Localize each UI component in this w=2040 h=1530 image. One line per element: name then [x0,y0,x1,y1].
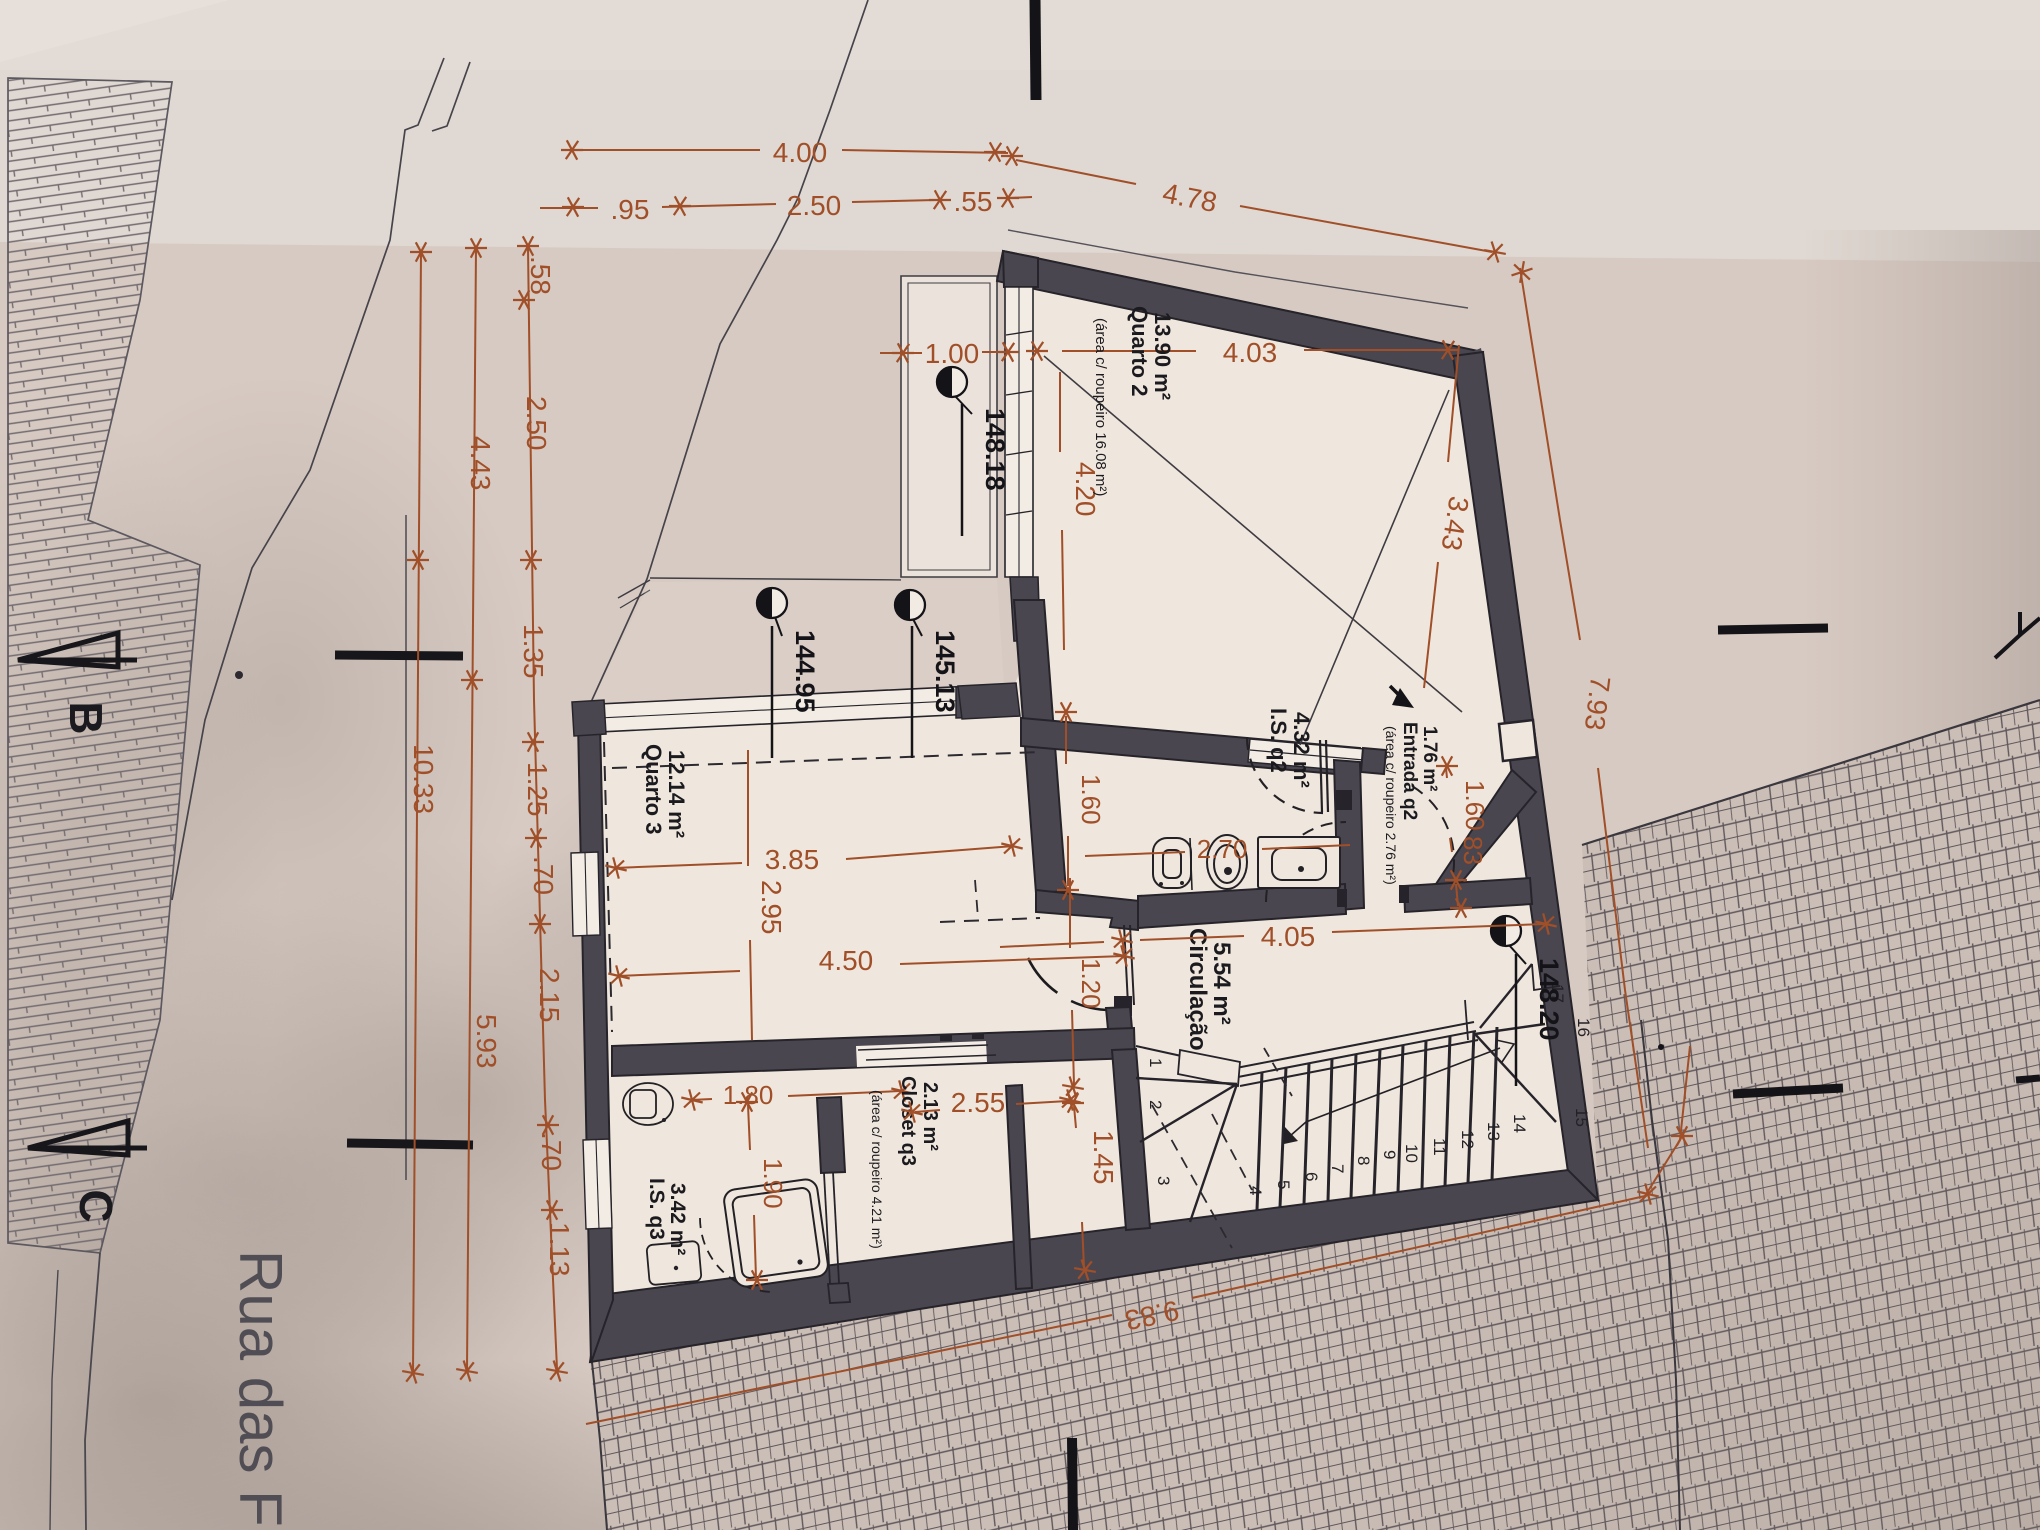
svg-text:Entrada q2: Entrada q2 [1399,722,1420,820]
svg-text:6: 6 [1302,1172,1321,1181]
svg-text:2.50: 2.50 [787,190,842,221]
svg-text:4.32 m²: 4.32 m² [1289,712,1314,788]
svg-text:I.S. q2: I.S. q2 [1266,708,1291,773]
svg-text:1.45: 1.45 [1088,1130,1119,1185]
svg-text:Quarto 3: Quarto 3 [641,744,666,834]
svg-text:.70: .70 [528,856,559,895]
svg-text:1.13: 1.13 [544,1222,575,1277]
svg-text:83: 83 [1458,836,1488,865]
svg-text:8: 8 [1354,1156,1373,1165]
svg-text:4.03: 4.03 [1223,337,1278,368]
svg-text:3.85: 3.85 [765,844,820,875]
svg-text:145.13: 145.13 [930,630,960,713]
svg-text:B: B [60,701,112,734]
svg-text:1.60: 1.60 [1460,780,1490,831]
svg-text:10.33: 10.33 [408,744,439,814]
svg-text:Closet q3: Closet q3 [897,1076,919,1166]
svg-text:2.95: 2.95 [756,880,787,935]
svg-text:Rua das Flo: Rua das Flo [227,1250,294,1530]
svg-text:10: 10 [1402,1144,1421,1163]
svg-text:.95: .95 [611,194,650,225]
svg-text:2: 2 [1146,1100,1165,1109]
svg-text:3: 3 [1154,1176,1173,1185]
svg-text:1.20: 1.20 [1076,958,1106,1009]
svg-text:4: 4 [1246,1186,1265,1195]
svg-text:I.S. q3: I.S. q3 [645,1178,668,1240]
svg-text:C: C [70,1189,122,1222]
svg-text:2.55: 2.55 [951,1087,1006,1118]
svg-text:.55: .55 [954,186,993,217]
svg-text:1.00: 1.00 [925,338,980,369]
svg-text:7.93: 7.93 [1579,674,1616,732]
svg-text:2.70: 2.70 [1197,834,1248,864]
svg-text:.70: .70 [536,1132,567,1171]
svg-text:5: 5 [1274,1180,1293,1189]
svg-text:1: 1 [1146,1058,1165,1067]
svg-text:2.15: 2.15 [534,968,565,1023]
svg-text:(área c/ roupeiro 16.08 m²): (área c/ roupeiro 16.08 m²) [1092,318,1109,496]
svg-text:15: 15 [1572,1108,1591,1127]
svg-text:11: 11 [1430,1138,1449,1156]
svg-text:Quarto 2: Quarto 2 [1127,306,1152,396]
svg-text:13.90 m²: 13.90 m² [1150,312,1175,400]
svg-text:Circulação: Circulação [1184,928,1211,1051]
svg-text:.58: .58 [525,256,556,295]
svg-text:1.76 m²: 1.76 m² [1419,726,1440,791]
svg-text:4.43: 4.43 [465,436,496,491]
svg-text:144.95: 144.95 [790,630,820,713]
svg-text:1.25: 1.25 [522,762,553,817]
svg-text:5.54 m²: 5.54 m² [1208,942,1235,1025]
svg-text:5.93: 5.93 [471,1014,502,1069]
svg-text:4.50: 4.50 [819,945,874,976]
svg-text:3.42 m²: 3.42 m² [666,1183,689,1255]
svg-text:13: 13 [1484,1122,1503,1141]
svg-text:16: 16 [1574,1018,1593,1037]
svg-text:1.35: 1.35 [518,624,549,679]
svg-text:9: 9 [1380,1150,1399,1159]
svg-text:1.60: 1.60 [1076,774,1106,825]
svg-text:7: 7 [1328,1164,1347,1173]
svg-text:(área c/ roupeiro 2.76 m²): (área c/ roupeiro 2.76 m²) [1383,726,1399,885]
svg-text:148.18: 148.18 [980,408,1010,491]
svg-text:2.50: 2.50 [521,396,552,451]
svg-text:(área c/ roupeiro 4.21 m²): (área c/ roupeiro 4.21 m²) [869,1090,885,1249]
svg-text:2.13 m²: 2.13 m² [919,1082,941,1151]
svg-text:4.00: 4.00 [773,137,828,168]
svg-text:14: 14 [1510,1114,1529,1133]
svg-text:1.90: 1.90 [758,1158,788,1209]
svg-text:148.20: 148.20 [1534,958,1564,1041]
svg-text:12: 12 [1458,1130,1477,1149]
svg-text:4.05: 4.05 [1261,921,1316,952]
svg-text:12.14 m²: 12.14 m² [664,750,689,838]
